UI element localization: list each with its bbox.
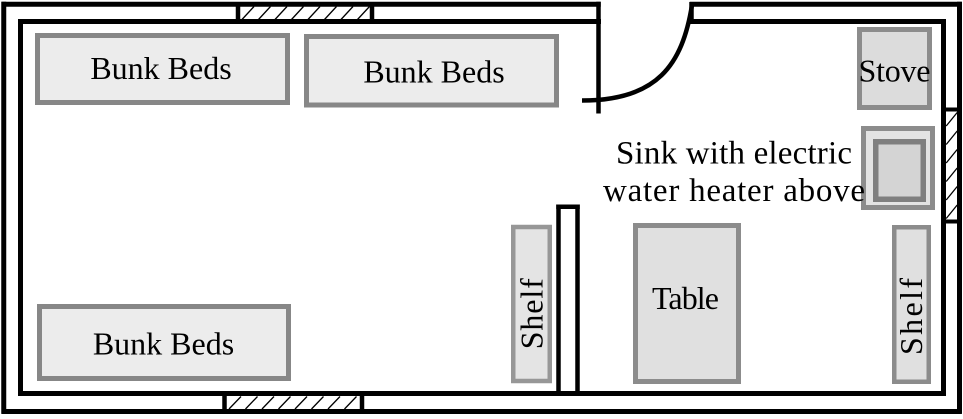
svg-text:Bunk Beds: Bunk Beds — [90, 50, 231, 86]
svg-text:water heater above: water heater above — [603, 173, 865, 209]
svg-text:Shelf: Shelf — [893, 278, 929, 355]
svg-text:Stove: Stove — [859, 53, 931, 89]
svg-text:Bunk Beds: Bunk Beds — [363, 54, 504, 90]
svg-text:Shelf: Shelf — [514, 278, 550, 349]
svg-text:Bunk Beds: Bunk Beds — [93, 326, 234, 362]
svg-text:Table: Table — [652, 280, 719, 316]
svg-text:Sink with electric: Sink with electric — [616, 136, 852, 172]
